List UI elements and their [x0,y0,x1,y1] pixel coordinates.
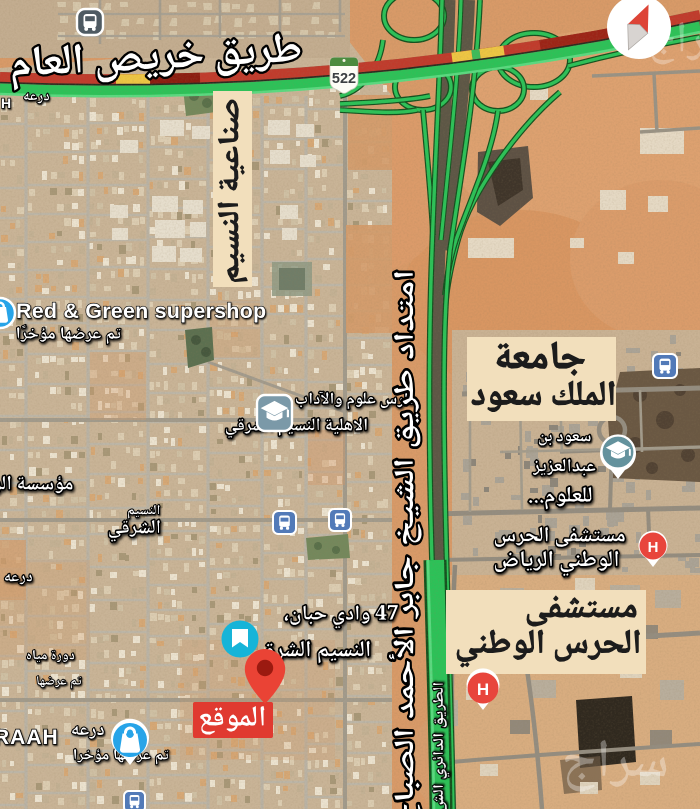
svg-text:RAAH: RAAH [0,726,59,749]
svg-text:H: H [1,95,11,111]
svg-text:Red & Green supershop: Red & Green supershop [16,299,266,323]
svg-text:H: H [477,680,489,699]
svg-text:522: 522 [332,71,356,87]
svg-text:H: H [648,539,659,556]
